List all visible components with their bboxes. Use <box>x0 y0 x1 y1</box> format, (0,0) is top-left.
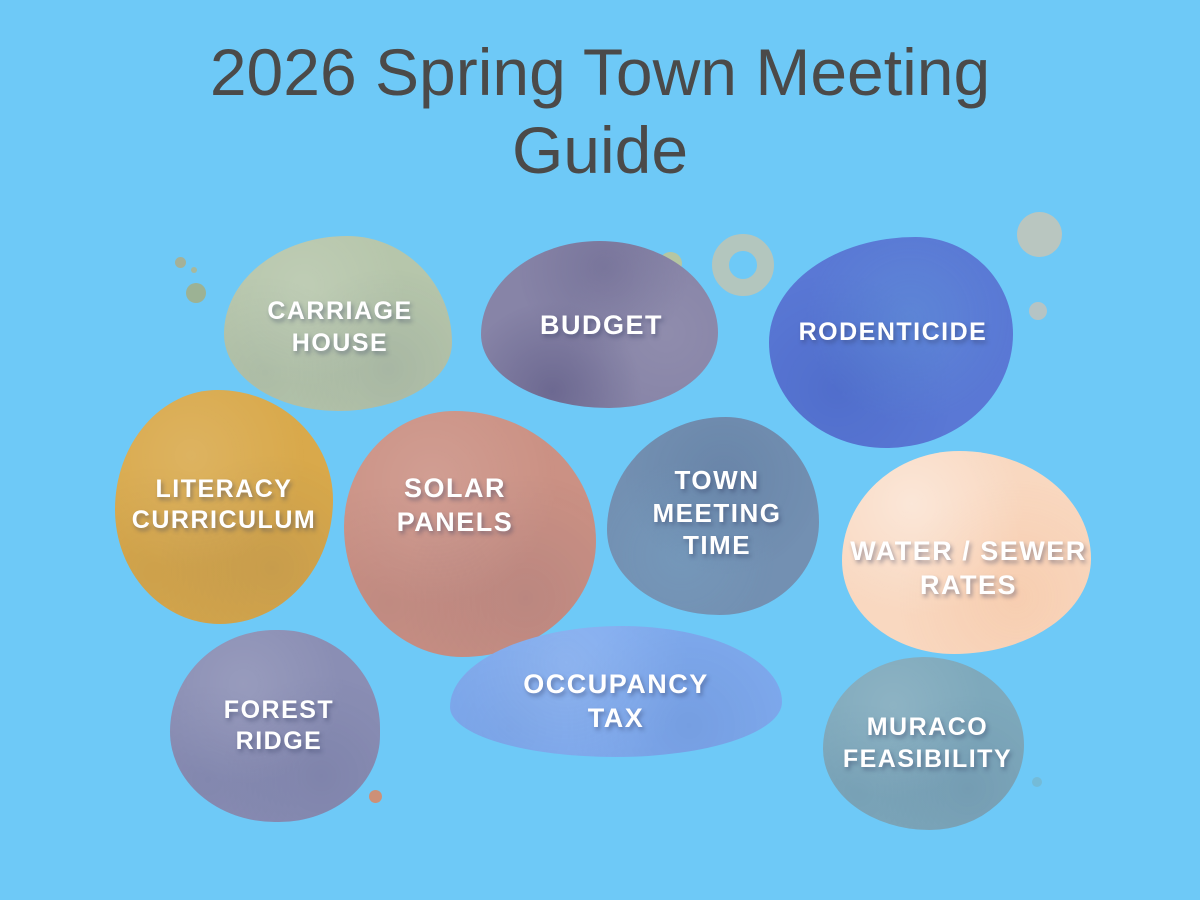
label-line: TOWN <box>653 464 782 497</box>
label-line: PANELS <box>397 506 514 540</box>
donut-ring-decoration <box>712 234 774 296</box>
salmon-dot-decoration <box>369 790 382 803</box>
label-line: MURACO <box>843 712 1012 743</box>
label-line: FEASIBILITY <box>843 744 1012 775</box>
pale-circle-large-decoration <box>1017 212 1062 257</box>
label-line: FOREST <box>224 695 334 726</box>
label-line: MEETING <box>653 497 782 530</box>
label-line: SOLAR <box>397 472 514 506</box>
topic-label-solar-panels: SOLAR PANELS <box>397 472 514 540</box>
page-title-line1: 2026 Spring Town Meeting <box>0 34 1200 112</box>
topic-blob-rodenticide: RODENTICIDE <box>769 237 1013 448</box>
topic-label-budget: BUDGET <box>540 309 663 343</box>
page-title-line2: Guide <box>0 112 1200 190</box>
topic-label-literacy-curriculum: LITERACY CURRICULUM <box>132 474 316 537</box>
sage-dot-medium-decoration <box>186 283 206 303</box>
topic-blob-muraco-feasibility: MURACO FEASIBILITY <box>823 657 1024 830</box>
topic-blob-budget: BUDGET <box>481 241 718 408</box>
topic-blob-forest-ridge: FOREST RIDGE <box>170 630 380 822</box>
label-line: TAX <box>523 702 709 736</box>
label-line: CURRICULUM <box>132 505 316 536</box>
label-line: WATER / SEWER <box>850 535 1087 569</box>
label-line: HOUSE <box>267 328 412 359</box>
label-line: RATES <box>850 569 1087 603</box>
topic-blob-carriage-house: CARRIAGE HOUSE <box>224 236 452 411</box>
label-line: BUDGET <box>540 309 663 343</box>
topic-blob-water-sewer-rates: WATER / SEWER RATES <box>842 451 1091 654</box>
topic-label-carriage-house: CARRIAGE HOUSE <box>267 296 412 359</box>
topic-label-occupancy-tax: OCCUPANCY TAX <box>523 668 709 736</box>
label-line: RIDGE <box>224 726 334 757</box>
topic-blob-literacy-curriculum: LITERACY CURRICULUM <box>115 390 333 624</box>
topic-label-muraco-feasibility: MURACO FEASIBILITY <box>843 712 1012 775</box>
sage-dot-tiny-decoration <box>191 267 197 273</box>
topic-blob-town-meeting-time: TOWN MEETING TIME <box>607 417 819 615</box>
topic-label-water-sewer-rates: WATER / SEWER RATES <box>850 535 1087 603</box>
topic-blob-solar-panels: SOLAR PANELS <box>344 411 596 657</box>
label-line: CARRIAGE <box>267 296 412 327</box>
sage-dot-small-decoration <box>175 257 186 268</box>
topic-label-rodenticide: RODENTICIDE <box>799 317 988 348</box>
label-line: RODENTICIDE <box>799 317 988 348</box>
teal-dot-decoration <box>1032 777 1042 787</box>
pale-circle-small-decoration <box>1029 302 1047 320</box>
label-line: LITERACY <box>132 474 316 505</box>
page-title: 2026 Spring Town Meeting Guide <box>0 34 1200 190</box>
label-line: OCCUPANCY <box>523 668 709 702</box>
topic-label-town-meeting-time: TOWN MEETING TIME <box>653 464 782 562</box>
poster-canvas: 2026 Spring Town Meeting Guide CARRIAGE … <box>0 0 1200 900</box>
topic-label-forest-ridge: FOREST RIDGE <box>224 695 334 758</box>
label-line: TIME <box>653 529 782 562</box>
